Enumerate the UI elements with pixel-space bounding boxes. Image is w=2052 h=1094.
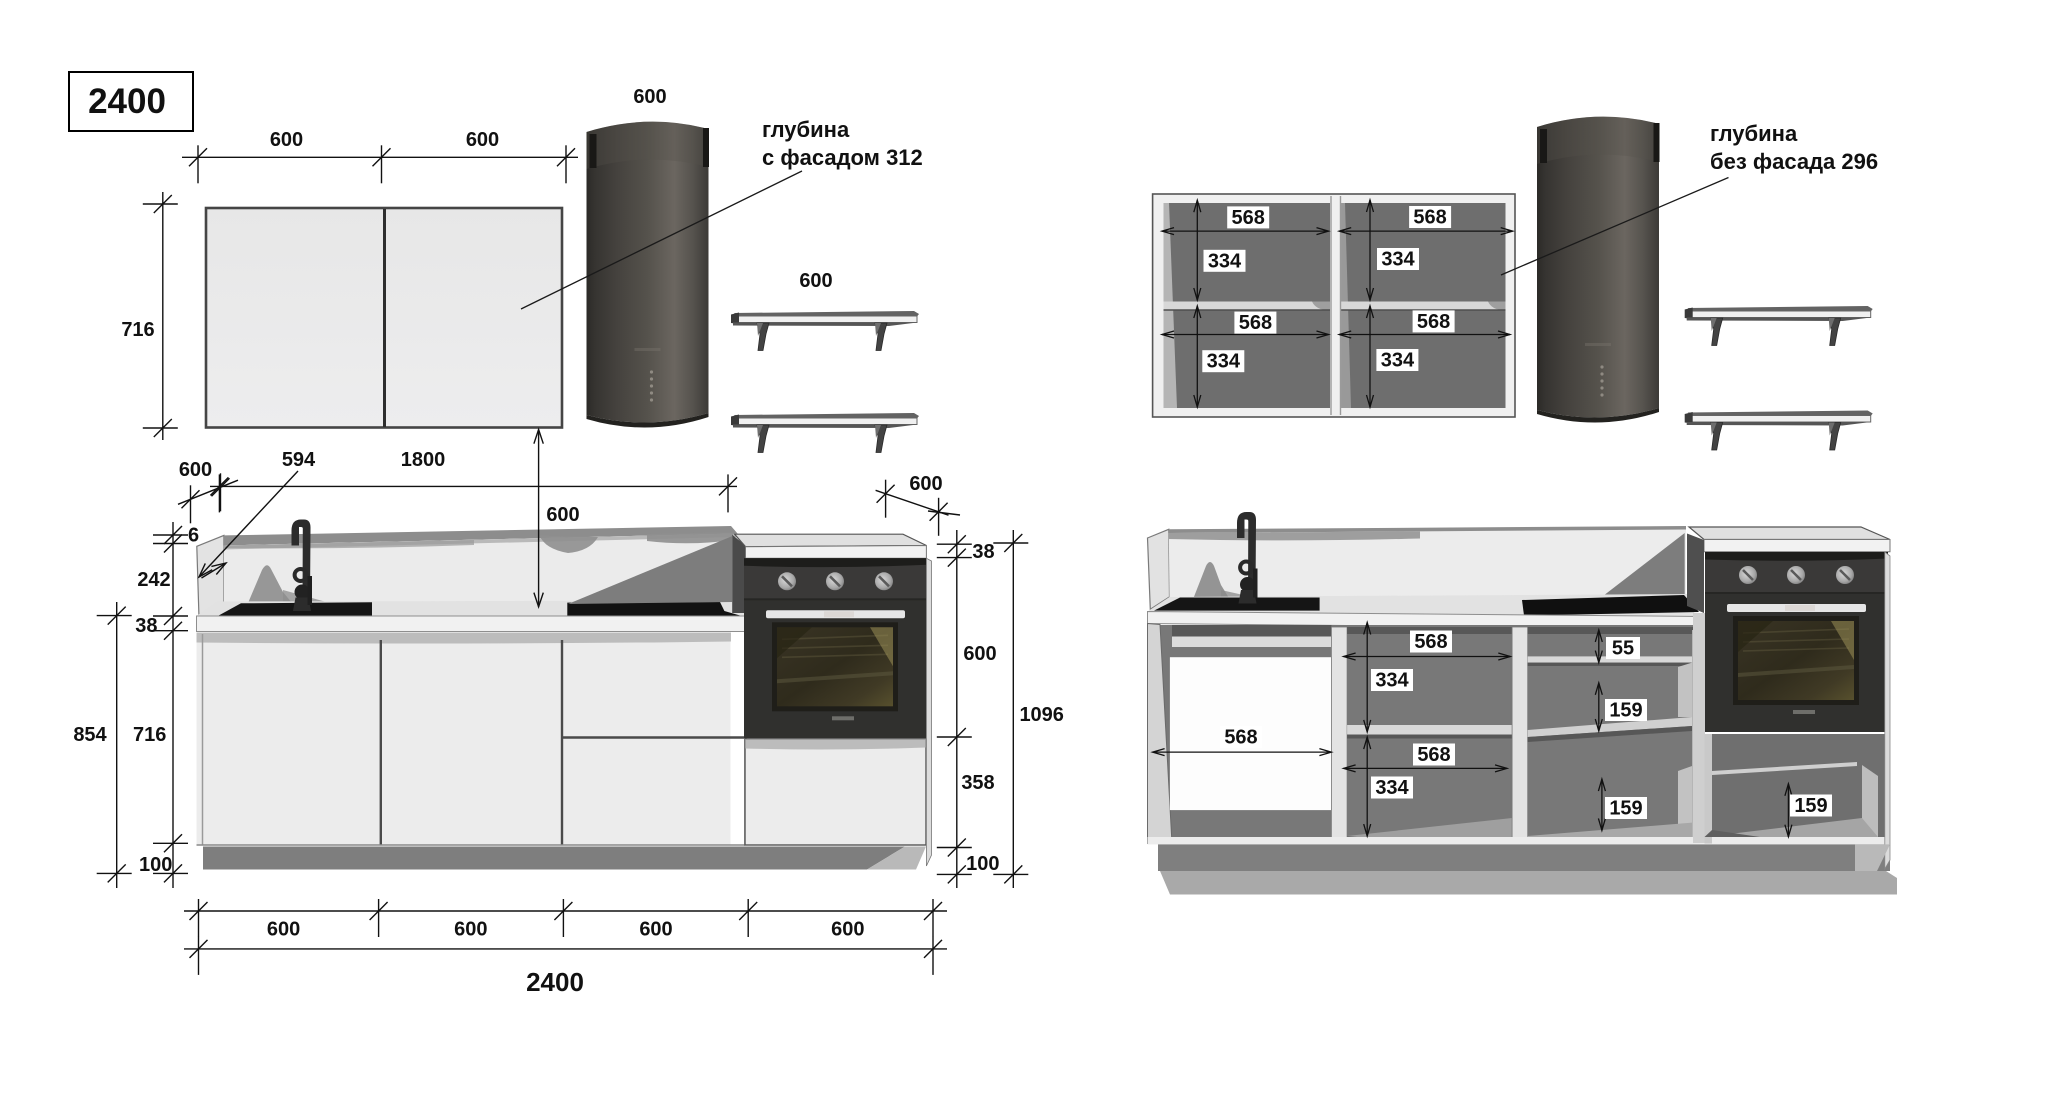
svg-text:600: 600 [179, 459, 212, 481]
svg-text:716: 716 [133, 724, 166, 746]
svg-text:568: 568 [1417, 744, 1450, 766]
svg-text:38: 38 [972, 541, 994, 563]
svg-text:600: 600 [454, 919, 487, 941]
svg-text:159: 159 [1609, 700, 1642, 722]
svg-text:600: 600 [267, 919, 300, 941]
svg-text:334: 334 [1381, 249, 1415, 271]
svg-text:334: 334 [1375, 670, 1409, 692]
svg-text:568: 568 [1224, 727, 1257, 749]
svg-text:334: 334 [1381, 350, 1415, 372]
svg-text:600: 600 [909, 473, 942, 495]
svg-text:854: 854 [73, 724, 107, 746]
svg-text:600: 600 [639, 919, 672, 941]
svg-text:334: 334 [1208, 250, 1242, 272]
svg-text:6: 6 [188, 525, 199, 547]
svg-text:358: 358 [961, 772, 994, 794]
svg-text:2400: 2400 [88, 82, 166, 121]
svg-text:600: 600 [799, 270, 832, 292]
svg-text:159: 159 [1794, 795, 1827, 817]
svg-text:568: 568 [1417, 311, 1450, 333]
svg-text:600: 600 [963, 643, 996, 665]
svg-text:568: 568 [1239, 312, 1272, 334]
svg-text:600: 600 [270, 129, 303, 151]
svg-text:с фасадом 312: с фасадом 312 [762, 145, 923, 170]
svg-text:600: 600 [466, 129, 499, 151]
svg-text:568: 568 [1414, 631, 1447, 653]
svg-text:600: 600 [831, 919, 864, 941]
svg-text:334: 334 [1375, 777, 1409, 799]
svg-text:716: 716 [121, 319, 154, 341]
svg-text:2400: 2400 [526, 967, 584, 997]
svg-text:55: 55 [1612, 638, 1634, 660]
svg-text:100: 100 [139, 854, 172, 876]
svg-text:глубина: глубина [1710, 121, 1798, 146]
svg-text:глубина: глубина [762, 117, 850, 142]
svg-text:159: 159 [1609, 798, 1642, 820]
svg-text:242: 242 [137, 569, 170, 591]
svg-text:38: 38 [135, 615, 157, 637]
svg-text:568: 568 [1413, 207, 1446, 229]
svg-text:без фасада 296: без фасада 296 [1710, 149, 1878, 174]
svg-text:1800: 1800 [401, 449, 446, 471]
svg-text:600: 600 [546, 504, 579, 526]
svg-text:1096: 1096 [1019, 704, 1064, 726]
svg-text:600: 600 [633, 86, 666, 108]
svg-text:568: 568 [1232, 207, 1265, 229]
svg-text:334: 334 [1207, 351, 1241, 373]
svg-text:594: 594 [282, 449, 316, 471]
svg-text:100: 100 [966, 853, 999, 875]
